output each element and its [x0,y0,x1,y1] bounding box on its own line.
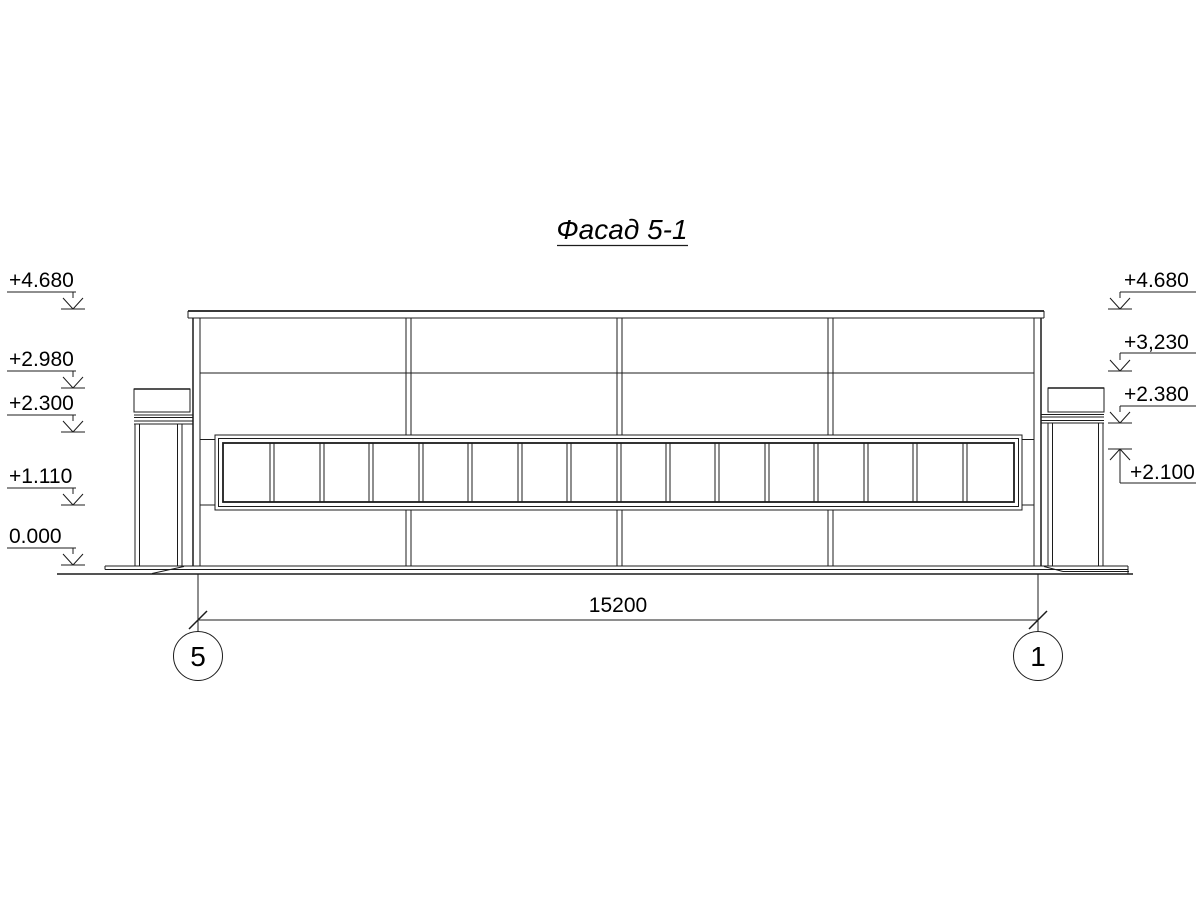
elevation-marks-right: +4.680 +3,230 +2.380 +2.100 [1108,269,1196,484]
facade-drawing-sheet: Фасад 5-1 [0,0,1200,900]
left-porch-posts [135,424,182,566]
left-wall [193,318,200,566]
axis-bubbles: 5 1 [174,632,1063,681]
axis-bubble-5: 5 [174,632,223,681]
pilasters [406,318,833,566]
elevation-mark-label: +2.100 [1130,461,1195,484]
elevation-mark: +2.380 [1108,383,1196,423]
elevation-mark-label: +1.110 [9,465,72,488]
elevation-mark-label: +4.680 [9,269,74,292]
dimension-group: 15200 [189,574,1047,632]
elevation-mark: +4.680 [7,269,85,309]
right-porch-posts [1048,423,1103,566]
elevation-mark-label: +2.980 [9,348,74,371]
elevation-mark: +2.980 [7,348,85,388]
elevation-mark-label: +2.300 [9,392,74,415]
elevation-mark-label: +2.380 [1124,383,1189,406]
right-wall [1034,318,1041,566]
left-canopy-hatch [134,389,190,412]
axis-label: 5 [190,641,206,672]
elevation-marks-left: +4.680 +2.980 +2.300 +1.110 0.000 [7,269,85,565]
elevation-mark: +1.110 [7,465,85,505]
elevation-mark: +2.300 [7,392,85,432]
left-porch [134,389,193,574]
axis-label: 1 [1030,641,1046,672]
drawing-title-group: Фасад 5-1 [556,214,688,246]
elevation-mark-label: +3,230 [1124,331,1189,354]
dimension-value: 15200 [589,594,647,617]
window-band [200,435,1034,510]
elevation-mark: 0.000 [7,525,85,565]
facade-drawing: Фасад 5-1 [0,0,1200,900]
elevation-mark: +4.680 [1108,269,1196,309]
parapet-band [188,311,1044,318]
right-porch [1041,388,1129,572]
ground-plinth [57,566,1133,574]
elevation-mark-label: 0.000 [9,525,62,548]
drawing-title: Фасад 5-1 [556,214,687,245]
elevation-mark: +3,230 [1108,331,1196,371]
axis-bubble-1: 1 [1014,632,1063,681]
elevation-mark-up: +2.100 [1108,449,1196,484]
window-mullions [270,443,967,502]
elevation-mark-label: +4.680 [1124,269,1189,292]
glazing-frame [223,443,1014,502]
building-elevation [57,311,1133,574]
right-canopy-hatch [1048,388,1104,412]
